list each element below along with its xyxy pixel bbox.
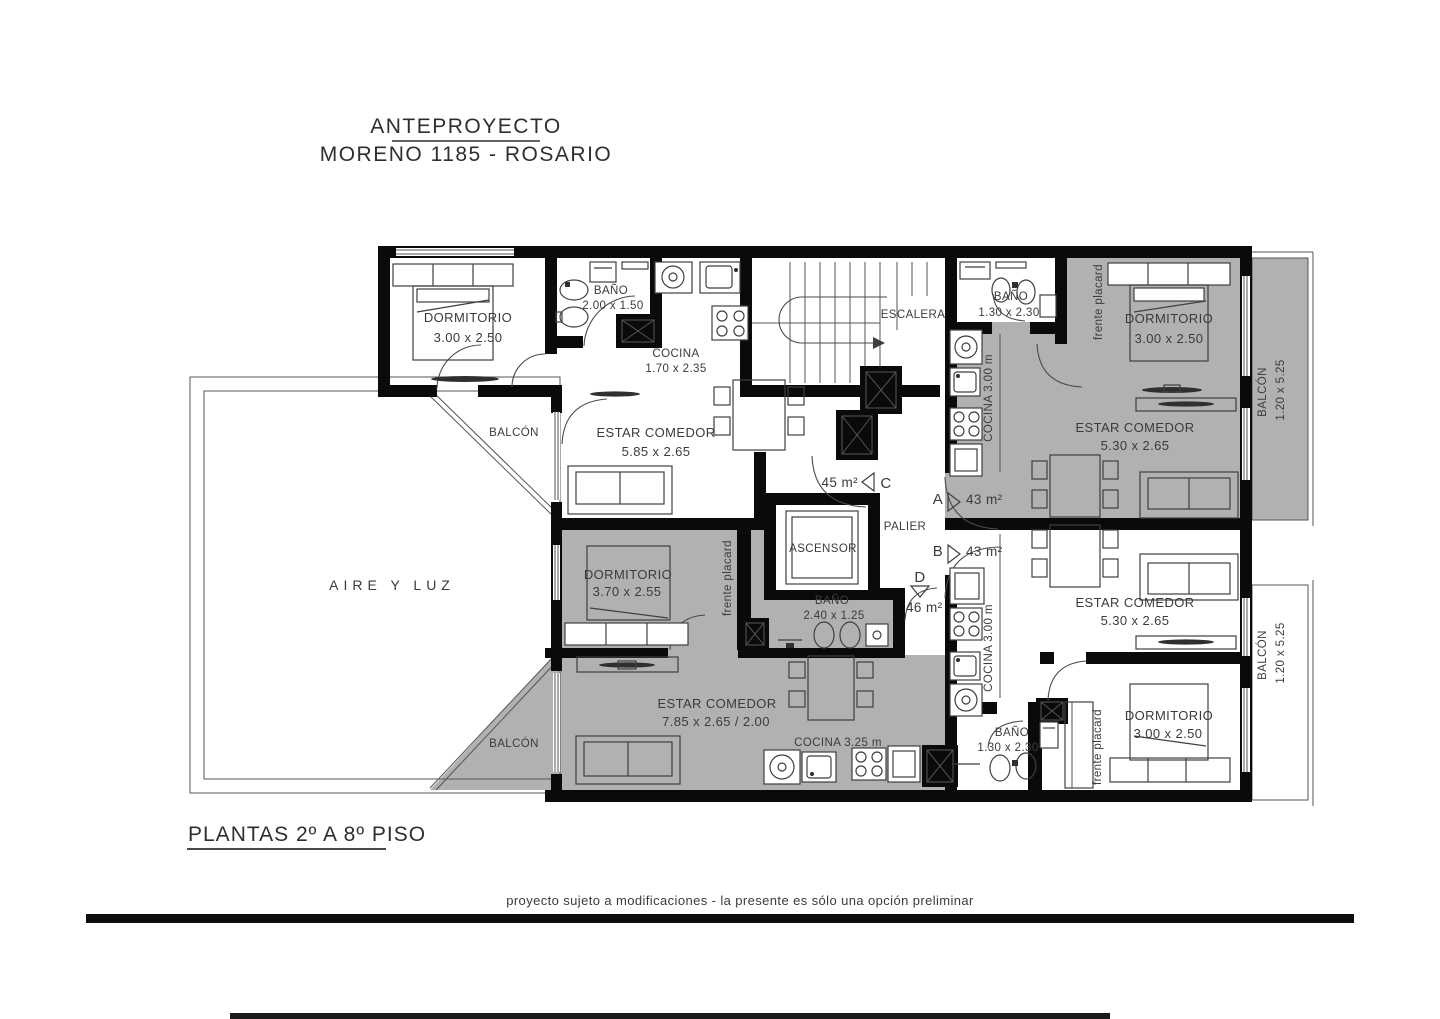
living-a-name: ESTAR COMEDOR (1075, 420, 1194, 435)
living-c-name: ESTAR COMEDOR (596, 425, 715, 440)
bath-tl-name: BAÑO (594, 284, 628, 297)
placard-a-label: frente placard (1093, 264, 1105, 340)
bath-d-name: BAÑO (815, 594, 849, 607)
stair-label: ESCALERA (881, 309, 946, 321)
kitchen-tl-dims: 1.70 x 2.35 (645, 363, 706, 375)
dorm-b-dims: 3.00 x 2.50 (1134, 726, 1203, 741)
unit-a-letter: A (933, 491, 943, 508)
project-title: ANTEPROYECTO (370, 115, 561, 138)
unit-c-area: 45 m² (821, 475, 858, 490)
courtyard-label: AIRE Y LUZ (329, 577, 455, 593)
plan-caption: PLANTAS 2º A 8º PISO (188, 823, 426, 846)
dorm-tl-dims: 3.00 x 2.50 (434, 330, 503, 345)
hall-label: PALIER (884, 521, 926, 533)
kitchen-tl-name: COCINA (652, 348, 699, 360)
balcony-tl-label: BALCÓN (489, 426, 539, 439)
unit-b-area: 43 m² (966, 544, 1003, 559)
kitchen-b-label: COCINA 3.00 m (983, 604, 995, 692)
dorm-a-name: DORMITORIO (1125, 311, 1213, 326)
disclaimer-text: proyecto sujeto a modificaciones - la pr… (506, 893, 974, 908)
bath-b-dims: 1.30 x 2.30 (977, 742, 1038, 754)
balcony-rb-label: BALCÓN (1256, 630, 1269, 680)
dorm-b-name: DORMITORIO (1125, 708, 1213, 723)
unit-d-area: 46 m² (906, 600, 943, 615)
floor-plan-page: ANTEPROYECTO MORENO 1185 - ROSARIO AIRE … (0, 0, 1440, 1019)
balcony-rt-dims: 1.20 x 5.25 (1275, 359, 1287, 420)
living-b-furniture (1032, 525, 1238, 649)
staircase: ESCALERA (752, 262, 945, 383)
balcony-rt-label: BALCÓN (1256, 367, 1269, 417)
bath-a-name: BAÑO (994, 290, 1028, 303)
living-d-dims: 7.85 x 2.65 / 2.00 (662, 714, 770, 729)
project-address: MORENO 1185 - ROSARIO (320, 143, 613, 166)
balcony-right-bottom: BALCÓN 1.20 x 5.25 (1252, 580, 1313, 806)
living-d-name: ESTAR COMEDOR (657, 696, 776, 711)
kitchen-a-label: COCINA 3.00 m (983, 354, 995, 442)
balcony-bl-label: BALCÓN (489, 737, 539, 750)
dorm-d-name: DORMITORIO (584, 567, 672, 582)
kitchen-d-label: COCINA 3.25 m (794, 737, 882, 749)
bath-tl-dims: 2.00 x 1.50 (582, 300, 643, 312)
dorm-a-dims: 3.00 x 2.50 (1135, 331, 1204, 346)
kitchen-tl-fixtures (655, 262, 748, 340)
unit-d-letter: D (914, 569, 925, 586)
dorm-d-dims: 3.70 x 2.55 (593, 584, 662, 599)
unit-b-letter: B (933, 543, 943, 560)
balcony-top-left: BALCÓN (427, 390, 556, 515)
living-c-dims: 5.85 x 2.65 (622, 444, 691, 459)
placard-b-label: frente placard (1092, 709, 1104, 785)
living-b-name: ESTAR COMEDOR (1075, 595, 1194, 610)
floor-plan-drawing: ANTEPROYECTO MORENO 1185 - ROSARIO AIRE … (0, 0, 1440, 1019)
unit-c-letter: C (880, 475, 891, 492)
dorm-tl-name: DORMITORIO (424, 310, 512, 325)
bath-b-name: BAÑO (995, 726, 1029, 739)
balcony-rb-dims: 1.20 x 5.25 (1275, 622, 1287, 683)
living-a-dims: 5.30 x 2.65 (1101, 438, 1170, 453)
footer-block: proyecto sujeto a modificaciones - la pr… (86, 893, 1354, 1019)
elevator-label: ASCENSOR (789, 543, 857, 555)
bath-d-dims: 2.40 x 1.25 (803, 610, 864, 622)
placard-d-label: frente placard (722, 540, 734, 616)
bath-a-dims: 1.30 x 2.30 (978, 307, 1039, 319)
bottom-edge-rule (230, 1013, 1110, 1019)
living-b-dims: 5.30 x 2.65 (1101, 613, 1170, 628)
footer-rule (86, 914, 1354, 923)
elevator: ASCENSOR (776, 505, 868, 590)
caption-block: PLANTAS 2º A 8º PISO (187, 823, 426, 849)
title-block: ANTEPROYECTO MORENO 1185 - ROSARIO (320, 115, 613, 166)
unit-a-area: 43 m² (966, 492, 1003, 507)
